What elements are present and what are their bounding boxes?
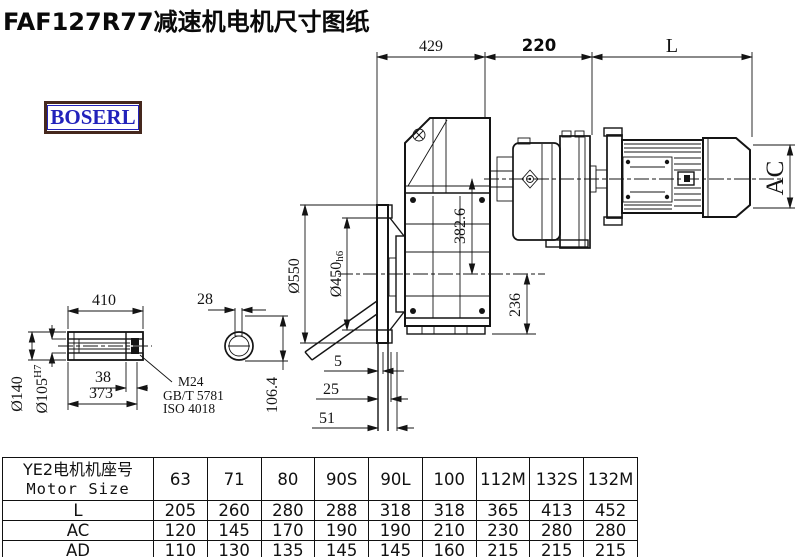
table-cell: 280 [261, 501, 315, 521]
page: FAF127R77减速机电机尺寸图纸 BOSERL 429 220 L [0, 0, 800, 557]
dim-429: 429 [419, 38, 443, 55]
table-cell: 260 [207, 501, 261, 521]
dim-382-6: 382.6 [452, 208, 469, 244]
table-row-L: L 205 260 280 288 318 318 365 413 452 [3, 501, 638, 521]
table-cell: 160 [422, 541, 476, 557]
table-header-cn: YE2电机机座号 [3, 460, 153, 480]
output-flange [305, 205, 405, 431]
table-cell: 413 [530, 501, 584, 521]
dim-AC: AC [762, 161, 789, 196]
table-cell: 145 [369, 541, 423, 557]
table-cell: 190 [369, 521, 423, 541]
table-cell: 145 [207, 521, 261, 541]
table-col-header: 80 [261, 458, 315, 501]
table-cell: 190 [315, 521, 369, 541]
table-cell: 215 [530, 541, 584, 557]
table-header-en: Motor Size [3, 480, 153, 498]
table-cell: 210 [422, 521, 476, 541]
helical-gear-stage [490, 131, 590, 248]
dim-236: 236 [507, 293, 524, 317]
dim-L: L [666, 35, 678, 57]
table-col-header: 112M [476, 458, 530, 501]
dim-28: 28 [197, 291, 213, 308]
table-cell: 280 [530, 521, 584, 541]
gearbox-housing [405, 118, 490, 334]
table-cell: 145 [315, 541, 369, 557]
dim-38: 38 [95, 369, 111, 386]
table-row-AD: AD 110 130 135 145 145 160 215 215 215 [3, 541, 638, 557]
technical-drawing: 429 220 L [0, 0, 800, 460]
dim-5: 5 [334, 353, 342, 370]
table-col-header: 100 [422, 458, 476, 501]
table-row-AC: AC 120 145 170 190 190 210 230 280 280 [3, 521, 638, 541]
row-label: L [3, 501, 154, 521]
table-col-header: 90L [369, 458, 423, 501]
main-view-dimensions: 382.6 236 AC Ø550 Ø450h6 5 25 51 [286, 145, 795, 428]
table-cell: 170 [261, 521, 315, 541]
table-header-motor-size: YE2电机机座号 Motor Size [3, 458, 154, 501]
row-label: AD [3, 541, 154, 557]
table-cell: 230 [476, 521, 530, 541]
note-m24: M24 [178, 374, 204, 389]
dim-450-tol: h6 [334, 250, 346, 262]
dim-105-tol: H7 [32, 364, 44, 378]
table-cell: 205 [154, 501, 208, 521]
table-col-header: 132M [584, 458, 638, 501]
table-cell: 452 [584, 501, 638, 521]
table-cell: 215 [584, 541, 638, 557]
table-cell: 120 [154, 521, 208, 541]
dim-140: Ø140 [9, 376, 26, 412]
dim-450: Ø450 [328, 262, 345, 298]
table-cell: 288 [315, 501, 369, 521]
dim-550: Ø550 [286, 258, 303, 294]
dim-220: 220 [522, 36, 556, 55]
table-col-header: 71 [207, 458, 261, 501]
dim-51: 51 [319, 410, 335, 427]
table-col-header: 63 [154, 458, 208, 501]
dim-105: Ø105 [34, 378, 51, 414]
table-cell: 215 [476, 541, 530, 557]
motor-size-table: YE2电机机座号 Motor Size 63 71 80 90S 90L 100… [2, 457, 638, 557]
dim-105H7: Ø105H7 [32, 364, 51, 414]
table-cell: 280 [584, 521, 638, 541]
table-cell: 365 [476, 501, 530, 521]
table-header-row: YE2电机机座号 Motor Size 63 71 80 90S 90L 100… [3, 458, 638, 501]
dim-106-4: 106.4 [264, 377, 281, 413]
table-cell: 318 [369, 501, 423, 521]
table-cell: 318 [422, 501, 476, 521]
table-col-header: 90S [315, 458, 369, 501]
dim-410: 410 [92, 292, 116, 309]
table-cell: 135 [261, 541, 315, 557]
table-cell: 110 [154, 541, 208, 557]
table-col-header: 132S [530, 458, 584, 501]
dim-25: 25 [323, 381, 339, 398]
table-cell: 130 [207, 541, 261, 557]
row-label: AC [3, 521, 154, 541]
note-iso4018: ISO 4018 [163, 401, 215, 416]
dim-450h6: Ø450h6 [328, 250, 346, 297]
shaft-detail-view: 410 Ø140 Ø105H7 38 373 [9, 292, 224, 416]
dim-373: 373 [89, 385, 113, 402]
